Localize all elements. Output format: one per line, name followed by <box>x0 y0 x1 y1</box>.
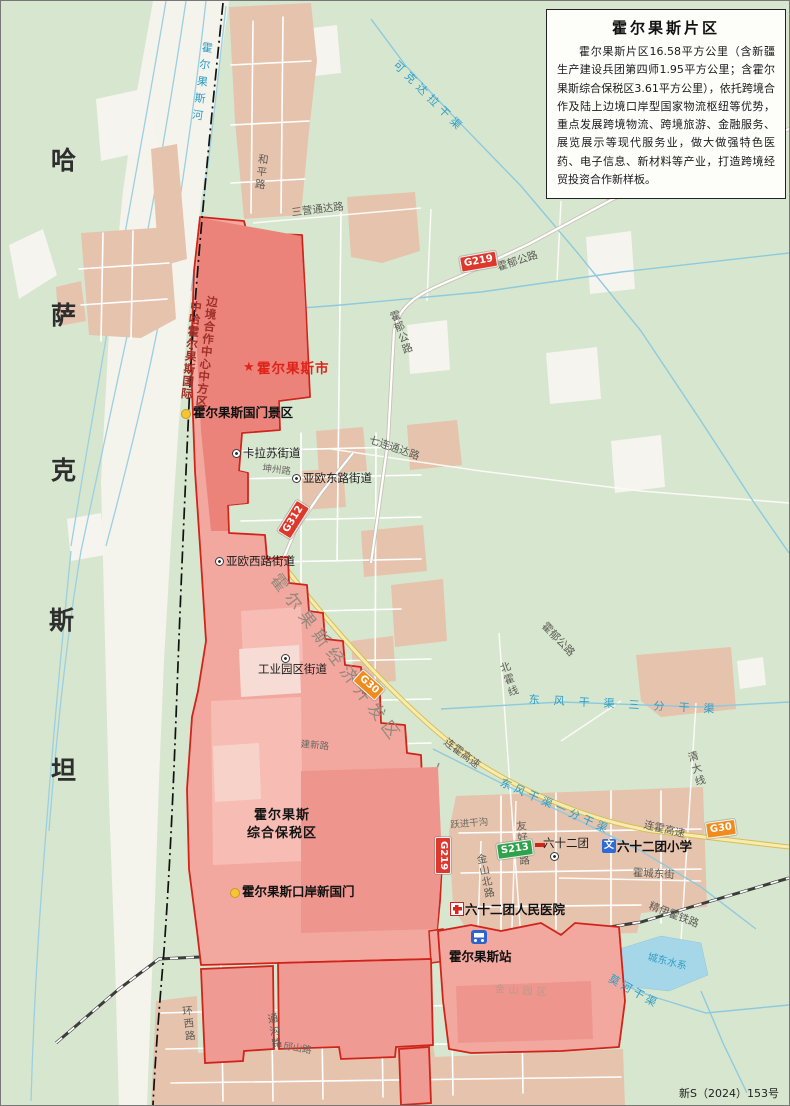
poi-industrial-park-subdistrict: 工业园区街道 <box>258 663 327 676</box>
ring-icon-yaou-east <box>292 474 301 483</box>
hospital-icon-62tuan <box>450 902 464 916</box>
country-char-si: 斯 <box>49 607 74 635</box>
poi-new-gate: 霍尔果斯口岸新国门 <box>242 885 355 899</box>
poi-guomen-scenic: 霍尔果斯国门景区 <box>193 406 293 420</box>
ring-icon-kalasu <box>232 449 241 458</box>
ring-icon-62tuan <box>550 852 559 861</box>
station-icon-horgos <box>471 930 487 944</box>
poi-yaou-east-subdistrict: 亚欧东路街道 <box>303 472 372 485</box>
country-char-tan: 坦 <box>51 757 76 785</box>
ring-icon-industrial-park <box>281 654 290 663</box>
poi-horgos-station: 霍尔果斯站 <box>449 950 512 964</box>
country-char-sa: 萨 <box>51 302 76 330</box>
poi-62tuan-school: 六十二团小学 <box>617 840 692 854</box>
badge-g219-3: G219 <box>435 837 451 874</box>
map-canvas: 哈萨克斯坦霍尔果斯河和平路三营通达路可克达拉干渠霍郁公路霍郁公路霍郁公路七连通达… <box>0 0 790 1106</box>
map-number-note: 新S（2024）153号 <box>1 1085 779 1101</box>
poi-yaou-west-subdistrict: 亚欧西路街道 <box>226 555 295 568</box>
title-box-heading: 霍尔果斯片区 <box>557 17 775 38</box>
zone-bonded: 霍尔果斯 综合保税区 <box>247 807 317 842</box>
country-char-ha: 哈 <box>51 147 76 175</box>
poi-62tuan-hospital: 六十二团人民医院 <box>465 903 565 917</box>
dot-icon-new-gate <box>230 888 240 898</box>
zone-bonded-core <box>301 767 442 933</box>
star-icon-horgos-city: ★ <box>243 361 255 374</box>
dot-icon-guomen-scenic <box>181 409 191 419</box>
ring-icon-yaou-west <box>215 557 224 566</box>
city-horgos: 霍尔果斯市 <box>257 362 330 377</box>
road-huocheng-east: 霍城东街 <box>632 868 675 882</box>
zone-bottom-west <box>201 966 274 1063</box>
title-box-body: 霍尔果斯片区16.58平方公里（含新疆生产建设兵团第四师1.95平方公里；含霍尔… <box>557 43 775 189</box>
title-box: 霍尔果斯片区 霍尔果斯片区16.58平方公里（含新疆生产建设兵团第四师1.95平… <box>546 9 786 199</box>
poi-kalasu-subdistrict: 卡拉苏街道 <box>243 447 301 460</box>
country-char-ke: 克 <box>51 457 76 485</box>
zone-inner-block-2 <box>213 743 261 802</box>
school-icon-62tuan: 文 <box>602 839 616 853</box>
poi-62tuan: 六十二团 <box>543 837 589 850</box>
